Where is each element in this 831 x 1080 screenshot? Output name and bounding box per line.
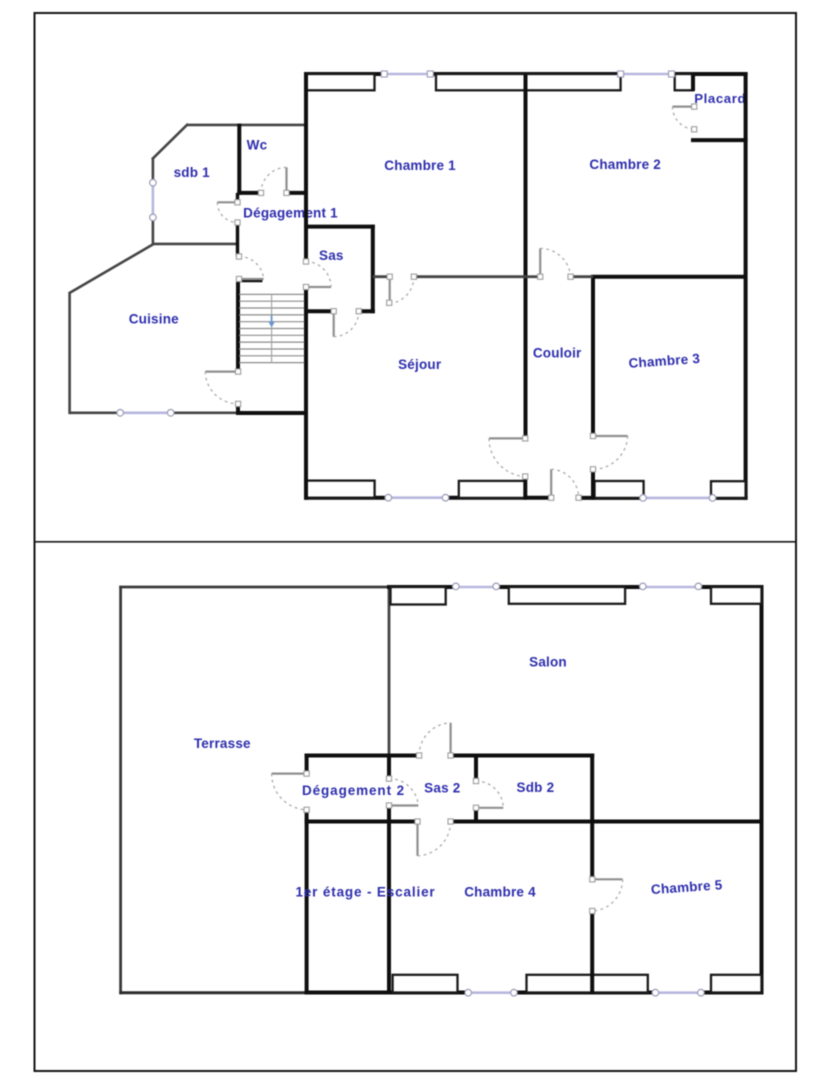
svg-text:Terrasse: Terrasse bbox=[194, 736, 251, 751]
svg-text:1er étage - Escalier: 1er étage - Escalier bbox=[295, 885, 435, 900]
svg-text:Wc: Wc bbox=[247, 138, 268, 153]
svg-text:Couloir: Couloir bbox=[533, 345, 582, 360]
svg-text:Sas: Sas bbox=[319, 248, 344, 263]
svg-text:Sdb 2: Sdb 2 bbox=[517, 780, 555, 795]
svg-text:Salon: Salon bbox=[529, 655, 567, 670]
svg-text:Séjour: Séjour bbox=[398, 357, 442, 372]
svg-text:Sas 2: Sas 2 bbox=[424, 780, 460, 795]
svg-text:Chambre 2: Chambre 2 bbox=[589, 157, 661, 172]
svg-text:sdb 1: sdb 1 bbox=[174, 165, 211, 180]
svg-text:Dégagement 1: Dégagement 1 bbox=[243, 206, 338, 221]
svg-text:Placard: Placard bbox=[694, 91, 746, 106]
svg-text:Chambre 1: Chambre 1 bbox=[384, 158, 456, 173]
svg-text:Cuisine: Cuisine bbox=[129, 312, 179, 327]
svg-text:Chambre 4: Chambre 4 bbox=[464, 885, 536, 900]
svg-text:Dégagement 2: Dégagement 2 bbox=[302, 783, 405, 798]
